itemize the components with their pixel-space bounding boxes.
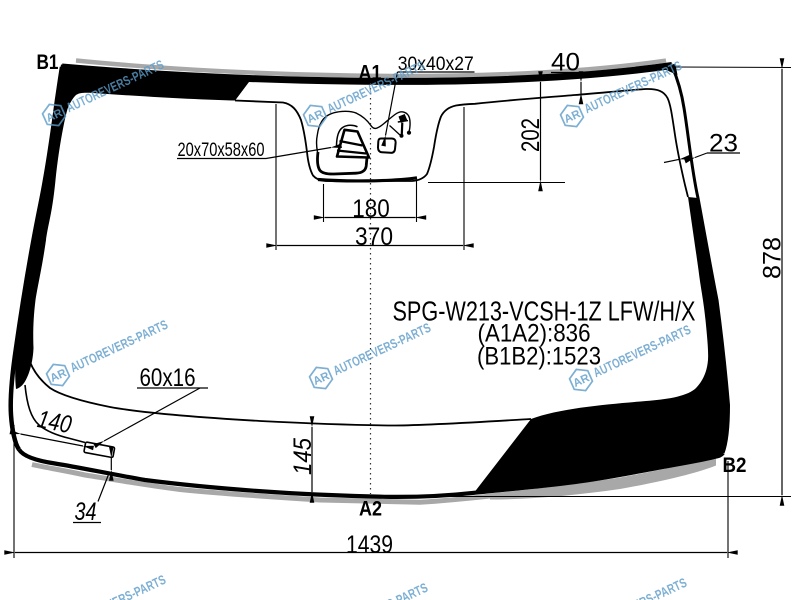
svg-text:145: 145 <box>289 438 317 475</box>
svg-text:34: 34 <box>75 498 97 526</box>
svg-text:370: 370 <box>355 223 393 251</box>
svg-text:A2: A2 <box>359 498 382 521</box>
svg-text:180: 180 <box>352 195 390 223</box>
svg-text:20x70x58x60: 20x70x58x60 <box>178 140 265 161</box>
svg-text:(B1B2):1523: (B1B2):1523 <box>477 343 601 371</box>
svg-text:B2: B2 <box>723 454 747 477</box>
svg-text:1439: 1439 <box>346 531 393 559</box>
svg-text:B1: B1 <box>37 51 59 74</box>
